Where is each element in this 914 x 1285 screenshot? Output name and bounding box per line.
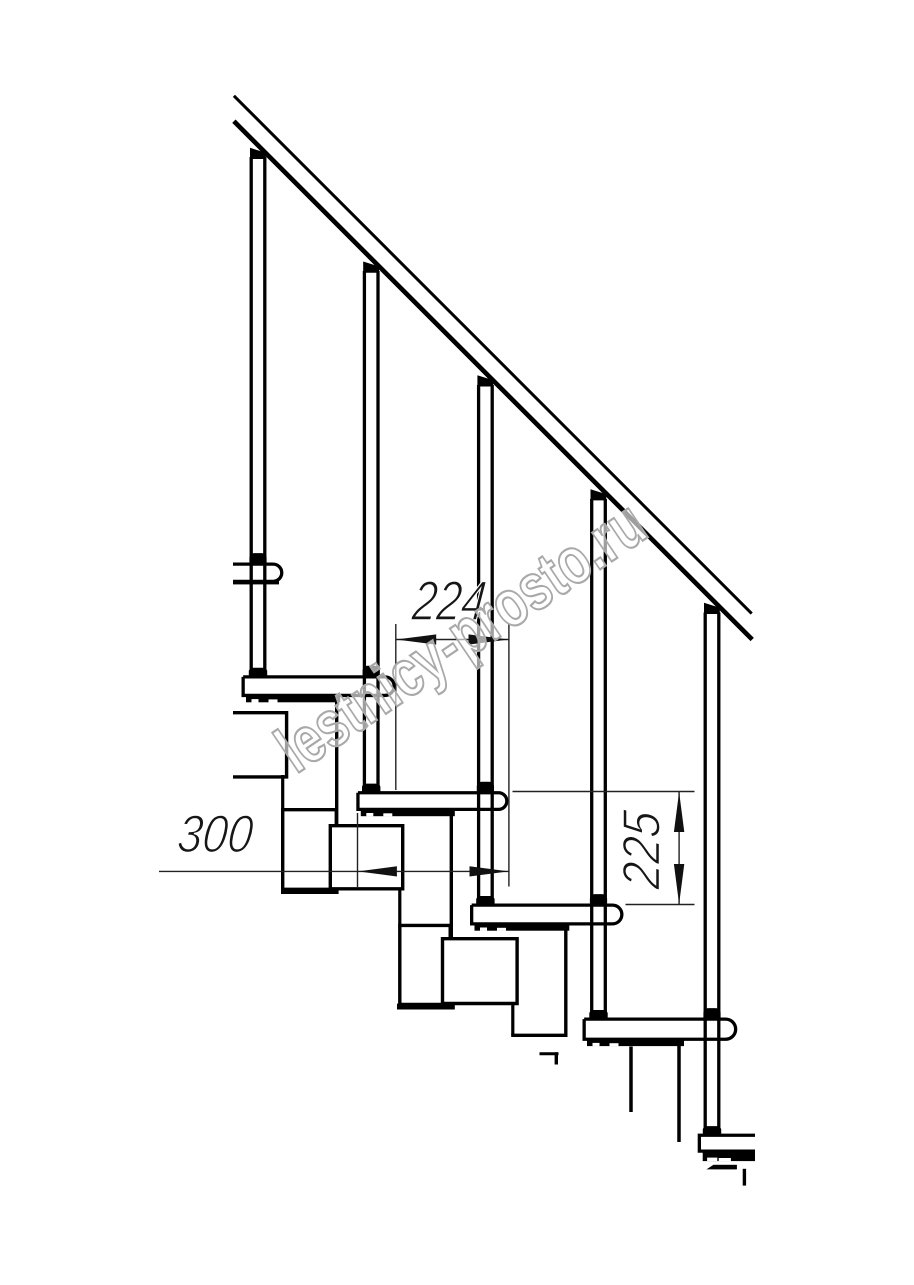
svg-text:225: 225 — [613, 808, 672, 892]
svg-text:300: 300 — [175, 805, 257, 864]
